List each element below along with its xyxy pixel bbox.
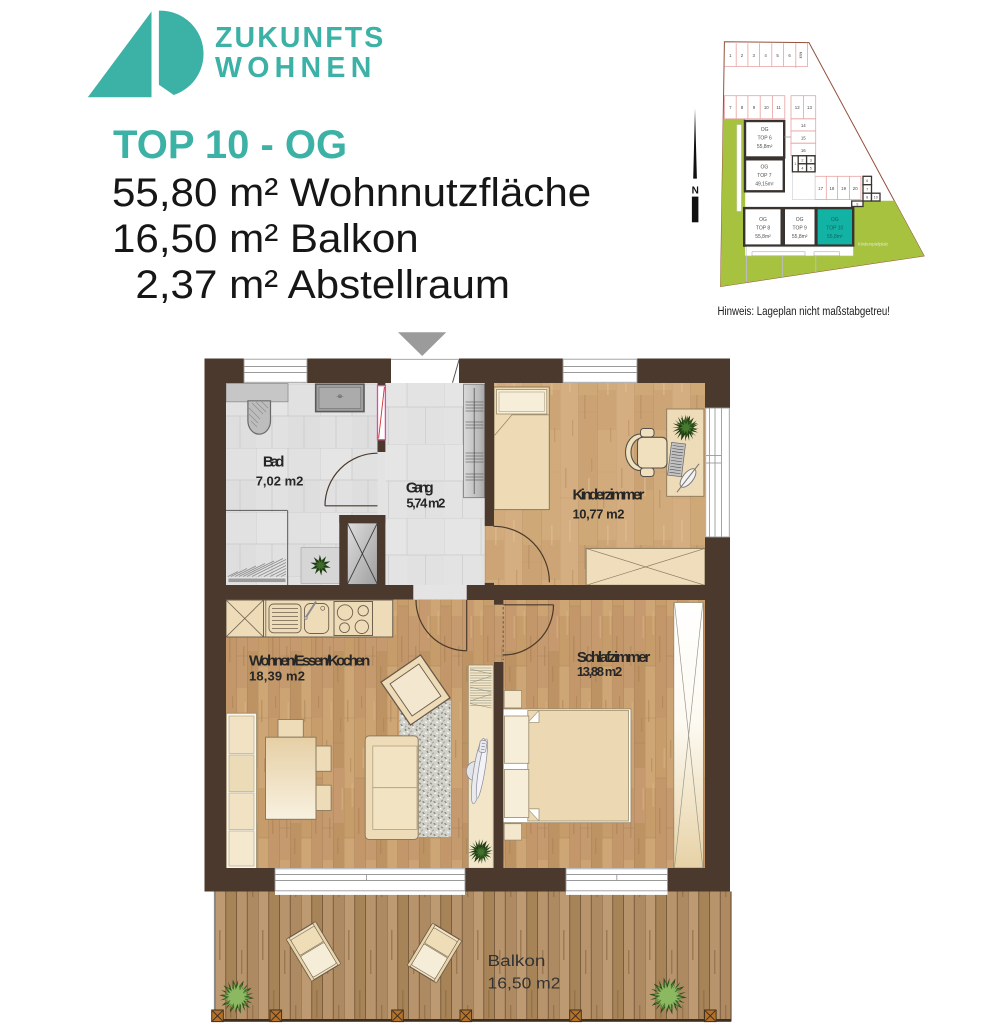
svg-text:OG: OG xyxy=(796,217,804,223)
svg-text:10: 10 xyxy=(764,105,769,110)
svg-text:5,74 m2: 5,74 m2 xyxy=(406,496,445,511)
svg-text:OG: OG xyxy=(761,165,769,171)
svg-text:10,77 m2: 10,77 m2 xyxy=(573,507,625,522)
svg-text:OG: OG xyxy=(761,127,769,133)
svg-text:Balkon: Balkon xyxy=(488,953,546,970)
svg-text:Kinderzimmer: Kinderzimmer xyxy=(573,487,645,504)
svg-text:18,39 m2: 18,39 m2 xyxy=(249,668,305,683)
svg-text:1: 1 xyxy=(794,162,796,166)
svg-text:16: 16 xyxy=(801,148,806,153)
svg-text:12: 12 xyxy=(795,105,800,110)
svg-text:19: 19 xyxy=(841,186,846,191)
svg-text:16,50 m2: 16,50 m2 xyxy=(488,976,561,993)
svg-text:14: 14 xyxy=(801,123,806,128)
svg-text:49,15m²: 49,15m² xyxy=(755,182,774,188)
svg-text:4: 4 xyxy=(801,166,803,170)
svg-text:13: 13 xyxy=(807,105,812,110)
svg-text:Hinweis: Lageplan nicht maßsta: Hinweis: Lageplan nicht maßstabgetreu! xyxy=(718,304,891,318)
svg-text:6: 6 xyxy=(866,179,868,183)
svg-text:TOP 10: TOP 10 xyxy=(826,226,843,232)
svg-text:55,8m²: 55,8m² xyxy=(755,234,771,240)
svg-text:7: 7 xyxy=(866,188,868,192)
svg-text:Kinderspielplatz: Kinderspielplatz xyxy=(858,242,888,247)
svg-text:OG: OG xyxy=(831,217,839,223)
svg-text:TOP 8: TOP 8 xyxy=(756,226,770,232)
svg-text:18: 18 xyxy=(829,186,834,191)
svg-text:TOP 6: TOP 6 xyxy=(757,136,771,142)
svg-text:55,8m²: 55,8m² xyxy=(827,234,843,240)
svg-text:15: 15 xyxy=(801,136,806,141)
svg-text:Gang: Gang xyxy=(406,480,434,497)
svg-text:OG: OG xyxy=(759,217,767,223)
svg-text:Müll: Müll xyxy=(799,52,803,59)
svg-text:55,8m²: 55,8m² xyxy=(757,144,773,150)
svg-text:13,88 m2: 13,88 m2 xyxy=(577,664,622,679)
svg-text:7,02 m2: 7,02 m2 xyxy=(256,474,304,489)
svg-text:10: 10 xyxy=(874,196,878,200)
svg-text:TOP 7: TOP 7 xyxy=(757,173,771,179)
svg-text:8: 8 xyxy=(866,196,868,200)
svg-text:2: 2 xyxy=(801,158,803,162)
svg-text:5: 5 xyxy=(810,166,812,170)
svg-text:3: 3 xyxy=(810,158,812,162)
svg-text:20: 20 xyxy=(853,186,858,191)
svg-text:N: N xyxy=(692,186,699,197)
svg-text:55,8m²: 55,8m² xyxy=(792,234,808,240)
svg-text:17: 17 xyxy=(818,186,823,191)
svg-text:11: 11 xyxy=(776,105,781,110)
svg-text:Bad: Bad xyxy=(263,453,285,470)
svg-text:TOP 9: TOP 9 xyxy=(793,226,807,232)
svg-text:Wohnen/Essen/Kochen: Wohnen/Essen/Kochen xyxy=(249,652,370,669)
svg-text:9: 9 xyxy=(856,203,858,207)
